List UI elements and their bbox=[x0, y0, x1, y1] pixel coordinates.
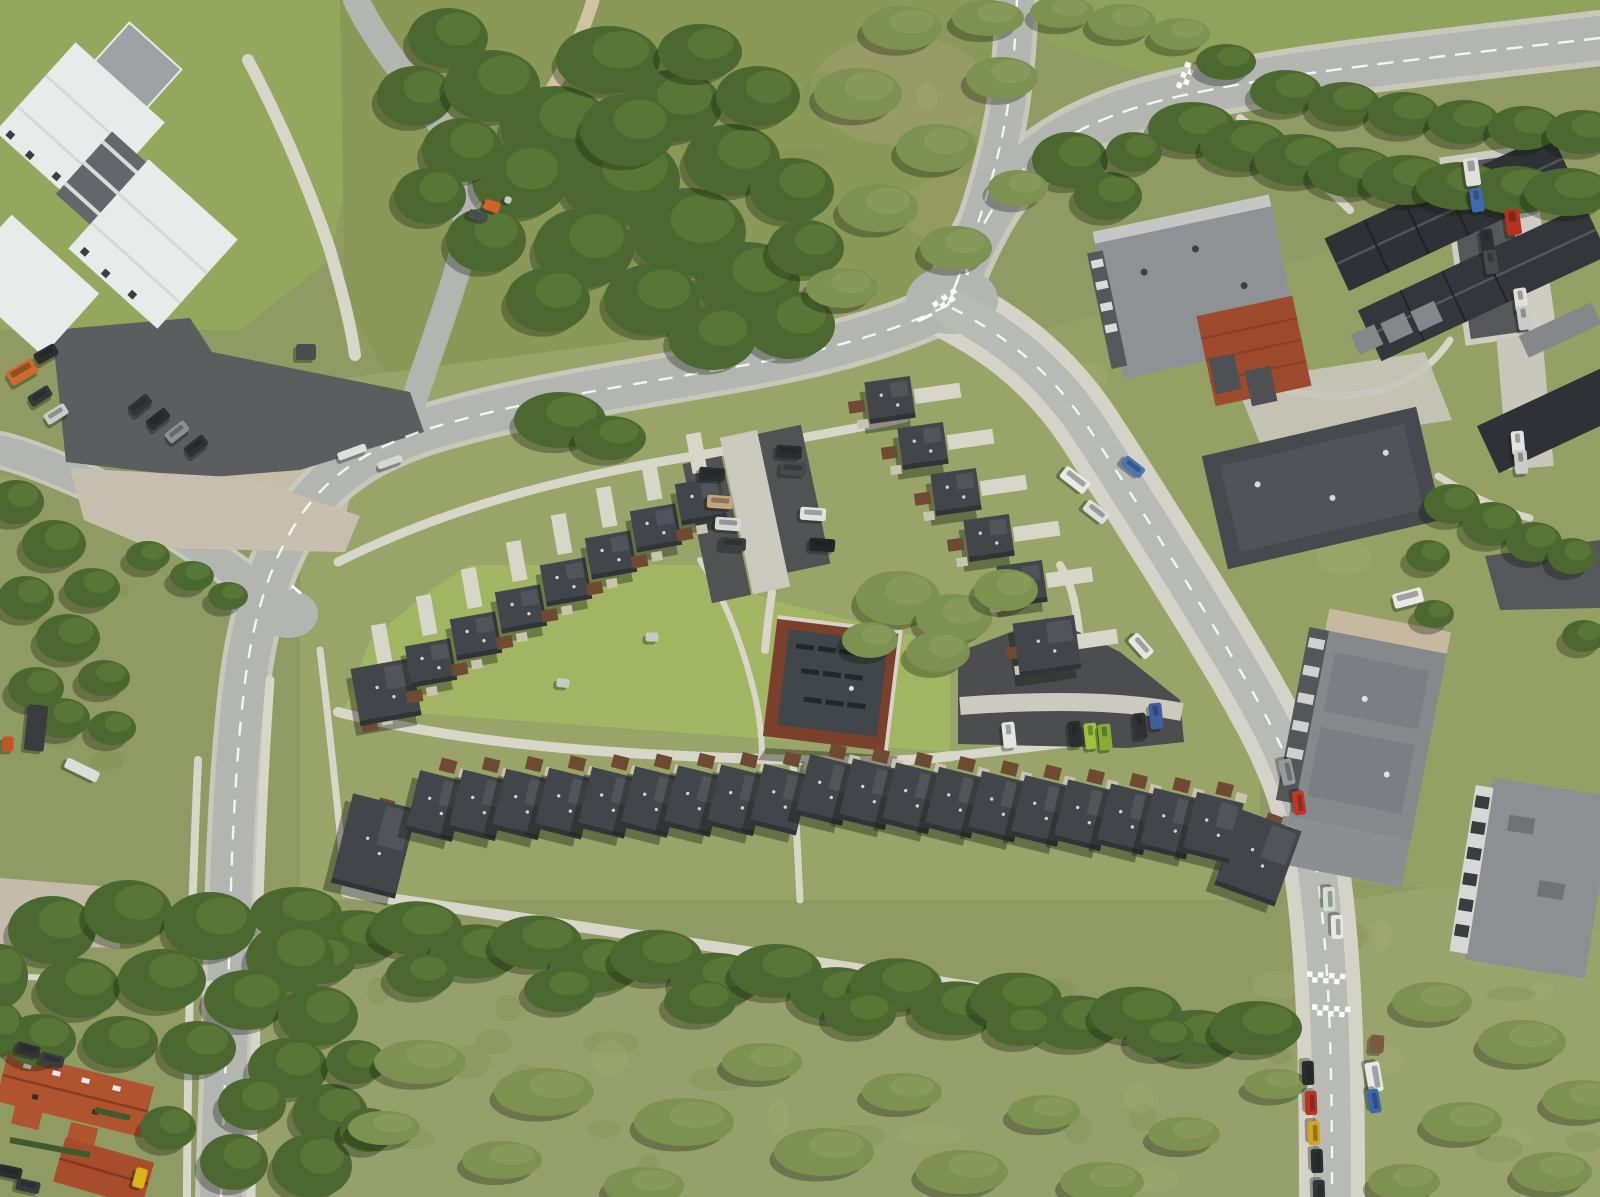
car-glass bbox=[1152, 705, 1158, 715]
canopy-highlight bbox=[109, 1020, 151, 1049]
car-glass bbox=[1071, 723, 1077, 733]
grass-mottle bbox=[495, 995, 521, 1021]
car bbox=[1129, 712, 1148, 743]
car bbox=[1307, 1146, 1323, 1174]
canopy-highlight bbox=[436, 13, 480, 46]
canopy-highlight bbox=[1098, 176, 1135, 202]
canopy-highlight bbox=[745, 71, 791, 104]
car-glass bbox=[1310, 1095, 1315, 1111]
canopy-highlight bbox=[1033, 1098, 1073, 1117]
canopy-highlight bbox=[1173, 1120, 1213, 1139]
canopy-highlight bbox=[1266, 1071, 1301, 1088]
canopy-highlight bbox=[1059, 136, 1101, 167]
canopy-highlight bbox=[28, 670, 59, 693]
car-glass bbox=[1316, 1153, 1321, 1169]
canopy-highlight bbox=[849, 995, 889, 1019]
car bbox=[805, 537, 835, 555]
terrace bbox=[561, 605, 573, 616]
canopy-highlight bbox=[671, 195, 735, 243]
canopy-highlight bbox=[948, 1153, 999, 1177]
canopy-highlight bbox=[29, 1018, 69, 1047]
canopy-highlight bbox=[373, 1114, 413, 1133]
canopy-highlight bbox=[522, 920, 573, 950]
roof-step bbox=[1046, 619, 1074, 643]
canopy-highlight bbox=[845, 72, 893, 101]
canopy-highlight bbox=[928, 635, 963, 657]
canopy-highlight bbox=[406, 1043, 457, 1067]
checker-square bbox=[1334, 979, 1340, 985]
canopy-highlight bbox=[490, 1144, 534, 1165]
canopy-highlight bbox=[1444, 487, 1475, 509]
canopy-highlight bbox=[404, 71, 446, 104]
canopy-highlight bbox=[1275, 73, 1315, 97]
car bbox=[1301, 1088, 1317, 1116]
car-glass bbox=[1467, 160, 1475, 172]
car bbox=[776, 461, 806, 479]
canopy-highlight bbox=[1450, 1105, 1494, 1127]
window bbox=[1454, 924, 1470, 938]
canopy-highlight bbox=[638, 269, 691, 309]
canopy-highlight bbox=[1002, 977, 1053, 1007]
terrace bbox=[606, 578, 618, 589]
canopy-highlight bbox=[277, 929, 325, 966]
canopy-highlight bbox=[149, 954, 197, 988]
car bbox=[796, 506, 826, 524]
checker-square bbox=[1328, 1011, 1334, 1017]
terrace bbox=[651, 551, 663, 562]
canopy-highlight bbox=[1453, 103, 1493, 127]
car bbox=[716, 536, 746, 554]
canopy-highlight bbox=[632, 1170, 676, 1191]
garden-shed bbox=[914, 492, 932, 506]
canopy-highlight bbox=[890, 9, 934, 33]
canopy-highlight bbox=[65, 963, 111, 996]
canopy-highlight bbox=[1126, 135, 1157, 157]
canopy-highlight bbox=[450, 123, 494, 158]
canopy-highlight bbox=[1565, 541, 1591, 561]
canopy-highlight bbox=[862, 625, 893, 645]
canopy-highlight bbox=[187, 1025, 229, 1055]
canopy-highlight bbox=[506, 148, 559, 190]
pallet-body bbox=[3, 737, 14, 752]
picnic-table-body bbox=[556, 678, 570, 688]
canopy-highlight bbox=[54, 701, 85, 723]
car-glass bbox=[1087, 725, 1093, 735]
canopy-highlight bbox=[8, 483, 39, 507]
canopy-highlight bbox=[224, 1138, 261, 1169]
car-glass bbox=[1136, 715, 1142, 725]
checker-square bbox=[1334, 1006, 1340, 1012]
canopy-highlight bbox=[890, 1076, 934, 1097]
grass-mottle bbox=[1372, 918, 1392, 952]
small-shed-body bbox=[296, 344, 316, 360]
car bbox=[772, 444, 802, 462]
canopy-highlight bbox=[1150, 1021, 1187, 1043]
canopy-highlight bbox=[1421, 542, 1445, 560]
garden-shed bbox=[947, 538, 965, 552]
car-glass bbox=[1518, 452, 1524, 462]
canopy-highlight bbox=[885, 575, 931, 605]
garden-shed bbox=[848, 400, 866, 414]
canopy-highlight bbox=[1509, 1023, 1557, 1047]
car bbox=[1304, 1118, 1320, 1146]
roof-step bbox=[565, 562, 584, 580]
roof-step bbox=[430, 643, 449, 661]
car bbox=[1319, 884, 1335, 912]
canopy-highlight bbox=[614, 99, 667, 139]
canopy-highlight bbox=[779, 163, 825, 198]
dumpster-body bbox=[1369, 1035, 1384, 1054]
checker-square bbox=[1312, 977, 1318, 983]
canopy-highlight bbox=[58, 618, 93, 644]
roof-step bbox=[956, 473, 975, 490]
canopy-highlight bbox=[478, 55, 531, 95]
car-glass bbox=[1515, 433, 1521, 443]
car bbox=[1064, 720, 1083, 751]
roof-step bbox=[610, 535, 629, 553]
canopy-highlight bbox=[1009, 173, 1042, 193]
window bbox=[1470, 821, 1486, 835]
canopy-highlight bbox=[529, 1072, 584, 1098]
canopy-highlight bbox=[84, 571, 115, 593]
car bbox=[1327, 912, 1343, 940]
canopy-highlight bbox=[1483, 505, 1516, 529]
canopy-highlight bbox=[795, 224, 837, 255]
aerial-photo-canvas bbox=[0, 0, 1600, 1197]
window bbox=[1458, 898, 1474, 912]
canopy-highlight bbox=[306, 991, 350, 1024]
car bbox=[711, 516, 741, 534]
canopy-highlight bbox=[1122, 991, 1173, 1021]
canopy-highlight bbox=[991, 60, 1031, 83]
checker-square bbox=[1318, 972, 1324, 978]
car-glass bbox=[1318, 1184, 1323, 1197]
canopy-highlight bbox=[96, 663, 125, 683]
canopy-highlight bbox=[222, 584, 244, 599]
canopy-highlight bbox=[642, 934, 693, 964]
checker-square bbox=[1307, 971, 1313, 977]
canopy-highlight bbox=[141, 543, 165, 560]
canopy-highlight bbox=[549, 971, 589, 995]
canopy-highlight bbox=[1010, 1009, 1047, 1031]
canopy-highlight bbox=[1242, 1005, 1293, 1035]
picnic-table-body bbox=[646, 633, 659, 642]
window bbox=[1462, 872, 1478, 886]
canopy-highlight bbox=[669, 1102, 724, 1128]
canopy-highlight bbox=[689, 983, 729, 1007]
car-glass bbox=[1005, 724, 1011, 734]
roof-step bbox=[890, 381, 909, 398]
grass-mottle bbox=[476, 1030, 512, 1054]
roof-step bbox=[520, 589, 539, 607]
canopy-highlight bbox=[402, 905, 453, 935]
canopy-highlight bbox=[977, 3, 1017, 23]
canopy-highlight bbox=[44, 524, 79, 550]
canopy-highlight bbox=[882, 962, 933, 992]
canopy-highlight bbox=[945, 229, 985, 253]
grass-mottle bbox=[898, 1125, 962, 1145]
canopy-highlight bbox=[750, 1046, 794, 1067]
canopy-highlight bbox=[282, 891, 333, 921]
car bbox=[998, 721, 1017, 752]
canopy-highlight bbox=[196, 897, 247, 934]
canopy-highlight bbox=[419, 172, 459, 203]
window bbox=[1466, 847, 1482, 861]
grass-mottle bbox=[592, 1040, 628, 1076]
canopy-highlight bbox=[1089, 1165, 1135, 1187]
car bbox=[695, 466, 725, 484]
terrace bbox=[471, 659, 483, 670]
terrace bbox=[956, 557, 968, 567]
canopy-highlight bbox=[1217, 47, 1250, 67]
roof-step bbox=[923, 427, 942, 444]
canopy-highlight bbox=[410, 956, 447, 980]
canopy-highlight bbox=[699, 311, 747, 346]
checker-square bbox=[1317, 1010, 1323, 1016]
checker-square bbox=[1340, 973, 1346, 979]
grass-mottle bbox=[916, 83, 938, 111]
grass-mottle bbox=[588, 1120, 620, 1138]
canopy-highlight bbox=[1428, 602, 1450, 617]
canopy-highlight bbox=[1526, 525, 1557, 547]
canopy-highlight bbox=[1171, 20, 1204, 38]
canopy-highlight bbox=[599, 419, 639, 443]
car-glass bbox=[1313, 1125, 1318, 1141]
checker-square bbox=[1323, 978, 1329, 984]
terrace bbox=[923, 511, 935, 521]
canopy-highlight bbox=[1112, 7, 1149, 27]
terrace bbox=[890, 465, 902, 475]
checker-square bbox=[1345, 1006, 1351, 1012]
terrace bbox=[516, 632, 528, 643]
car bbox=[1094, 723, 1113, 754]
canopy-highlight bbox=[809, 1132, 864, 1158]
car bbox=[1298, 1058, 1314, 1086]
car-glass bbox=[1328, 891, 1333, 907]
canopy-highlight bbox=[569, 214, 624, 258]
canopy-highlight bbox=[1393, 1167, 1433, 1187]
canopy-highlight bbox=[924, 128, 968, 154]
canopy-highlight bbox=[762, 948, 813, 978]
canopy-highlight bbox=[160, 1109, 191, 1133]
roof-step bbox=[475, 616, 494, 634]
canopy-highlight bbox=[233, 975, 279, 1008]
canopy-highlight bbox=[866, 188, 910, 214]
canopy-highlight bbox=[1420, 985, 1464, 1007]
car bbox=[1145, 702, 1164, 733]
grass-mottle bbox=[767, 1099, 789, 1135]
car bbox=[703, 494, 733, 512]
canopy-highlight bbox=[105, 714, 131, 733]
car bbox=[1510, 449, 1528, 477]
grass-mottle bbox=[90, 751, 124, 771]
canopy-highlight bbox=[276, 1043, 320, 1076]
checker-square bbox=[1323, 1005, 1329, 1011]
roof-step bbox=[989, 519, 1008, 536]
canopy-highlight bbox=[1393, 95, 1433, 119]
aerial-photo bbox=[0, 0, 1600, 1197]
canopy-highlight bbox=[831, 271, 871, 293]
canopy-highlight bbox=[18, 579, 49, 603]
grass-mottle bbox=[1124, 1083, 1154, 1113]
car-glass bbox=[1307, 1065, 1312, 1081]
canopy-highlight bbox=[185, 563, 209, 580]
small-shed bbox=[293, 344, 316, 363]
checker-square bbox=[1339, 1012, 1345, 1018]
terrace bbox=[696, 524, 708, 535]
canopy-highlight bbox=[996, 572, 1031, 595]
car-glass bbox=[1101, 726, 1107, 736]
grass-mottle bbox=[1486, 987, 1536, 1001]
canopy-highlight bbox=[718, 129, 771, 169]
canopy-highlight bbox=[1540, 1155, 1584, 1177]
canopy-highlight bbox=[1333, 85, 1373, 109]
checker-square bbox=[1329, 973, 1335, 979]
terrace bbox=[857, 419, 869, 429]
canopy-highlight bbox=[687, 28, 733, 59]
garden-shed bbox=[881, 446, 899, 460]
car-glass bbox=[1336, 919, 1341, 935]
roof-step bbox=[655, 508, 674, 526]
canopy-highlight bbox=[242, 1082, 279, 1111]
terrace bbox=[426, 686, 438, 697]
car-glass bbox=[1508, 211, 1516, 222]
canopy-highlight bbox=[592, 31, 649, 68]
canopy-highlight bbox=[115, 885, 163, 920]
window bbox=[1474, 795, 1490, 809]
canopy-highlight bbox=[535, 273, 581, 308]
checker-square bbox=[1312, 1004, 1318, 1010]
